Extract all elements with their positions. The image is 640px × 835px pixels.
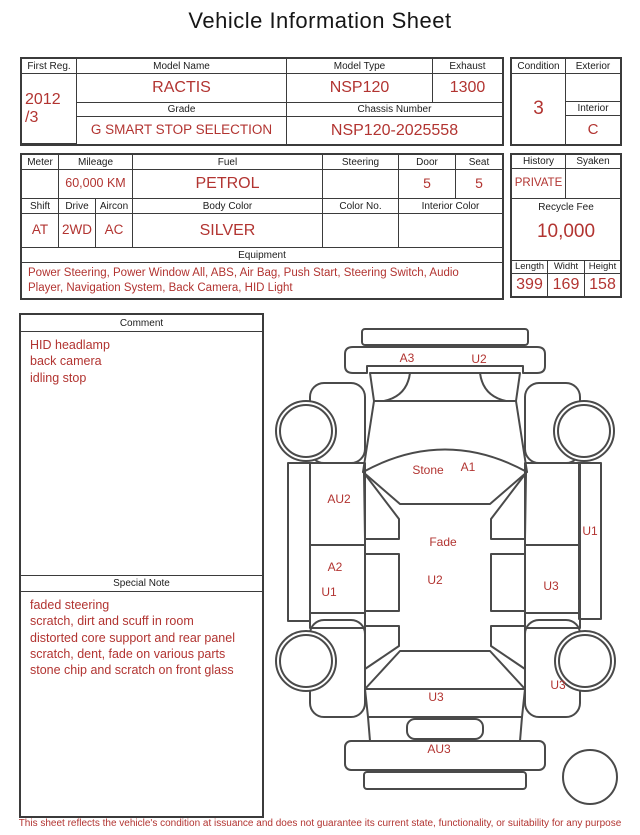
drive-header: Drive [59,199,96,214]
mark-a1: A1 [461,460,476,474]
model-type-header: Model Type [287,59,433,74]
condition-value: 3 [512,74,566,144]
rear-window [365,651,525,689]
first-reg-header: First Reg. [22,59,77,74]
windshield [363,450,527,505]
mark-u2-roof: U2 [427,573,443,587]
body-color-header: Body Color [133,199,323,214]
mark-u1-right: U1 [582,524,598,538]
chassis-number-header: Chassis Number [287,103,502,117]
door-header: Door [399,155,456,170]
width-value: 169 [548,274,585,296]
disclaimer: This sheet reflects the vehicle's condit… [0,818,640,829]
seat-value: 5 [456,170,502,199]
seat-header: Seat [456,155,502,170]
left-headlight [384,373,410,401]
exhaust-value: 1300 [433,74,502,103]
steering-header: Steering [323,155,399,170]
vehicle-identity-table: First Reg. 2012 /3 Model Name Model Type… [20,57,504,146]
height-header: Height [585,261,620,274]
condition-header: Condition [512,59,566,74]
shift-value: AT [22,214,59,248]
hood [370,373,520,401]
length-header: Length [512,261,548,274]
exhaust-header: Exhaust [433,59,502,74]
syaken-value [566,169,620,199]
mark-au2: AU2 [327,492,351,506]
spare-wheel [563,750,617,804]
model-name-value: RACTIS [77,74,287,103]
comment-header: Comment [21,315,262,332]
mark-u1-left: U1 [321,585,337,599]
recycle-fee-header: Recycle Fee [538,202,594,213]
right-headlight [480,373,506,401]
drive-value: 2WD [59,214,96,248]
mark-u3-rear-window: U3 [428,690,444,704]
color-no-header: Color No. [323,199,399,214]
equipment-value: Power Steering, Power Window All, ABS, A… [22,263,502,298]
front-right-wheel [554,401,614,461]
grade-header: Grade [77,103,287,117]
special-note-text: faded steering scratch, dirt and scuff i… [21,592,262,816]
tailgate [368,717,522,741]
fuel-header: Fuel [133,155,323,170]
recycle-fee-cell: Recycle Fee 10,000 [512,199,620,261]
hatch [365,689,525,717]
history-value: PRIVATE [512,169,566,199]
mark-u2-front: U2 [471,352,487,366]
aircon-value: AC [96,214,133,248]
mark-u3-right-door: U3 [543,579,559,593]
damage-marks: A3 U2 Stone A1 AU2 Fade A2 U2 U1 U1 U3 U… [321,351,598,756]
interior-color-value [399,214,502,248]
meter-header: Meter [22,155,59,170]
condition-table: Condition 3 Exterior Interior C [510,57,622,146]
right-sill [579,463,601,619]
first-reg-value: 2012 /3 [22,74,77,144]
syaken-header: Syaken [566,155,620,169]
front-garnish [362,329,528,345]
mark-a2: A2 [328,560,343,574]
left-sill [288,463,310,621]
equipment-header: Equipment [22,248,502,263]
shift-header: Shift [22,199,59,214]
history-fee-dims-table: History Syaken PRIVATE Recycle Fee 10,00… [510,153,622,298]
plate-recess [407,719,483,739]
front-left-wheel [276,401,336,461]
aircon-header: Aircon [96,199,133,214]
length-value: 399 [512,274,548,296]
interior-color-header: Interior Color [399,199,502,214]
door-value: 5 [399,170,456,199]
history-header: History [512,155,566,169]
page-title: Vehicle Information Sheet [0,8,640,34]
comment-text: HID headlamp back camera idling stop [21,332,262,575]
vehicle-spec-table: Meter Mileage Fuel Steering Door Seat 60… [20,153,504,300]
front-bumper [345,347,545,373]
color-no-value [323,214,399,248]
notes-panel: Comment HID headlamp back camera idling … [19,313,264,818]
meter-value [22,170,59,199]
steering-value [323,170,399,199]
mark-u3-rear-fender: U3 [550,678,566,692]
mark-stone: Stone [412,463,444,477]
mark-a3: A3 [400,351,415,365]
chassis-number-value: NSP120-2025558 [287,117,502,144]
exterior-header: Exterior [566,59,620,74]
body-color-value: SILVER [133,214,323,248]
mileage-value: 60,000 KM [59,170,133,199]
width-header: Widht [548,261,585,274]
recycle-fee-value: 10,000 [537,221,595,243]
grade-value: G SMART STOP SELECTION [77,117,287,144]
interior-value: C [566,116,620,144]
rear-left-wheel [276,631,336,691]
exterior-value [566,74,620,102]
model-type-value: NSP120 [287,74,433,103]
mileage-header: Mileage [59,155,133,170]
rear-garnish [364,772,526,789]
interior-header: Interior [566,102,620,116]
mark-fade: Fade [429,535,457,549]
car-diagram: A3 U2 Stone A1 AU2 Fade A2 U2 U1 U1 U3 U… [270,313,640,810]
mark-au3: AU3 [427,742,451,756]
fuel-value: PETROL [133,170,323,199]
height-value: 158 [585,274,620,296]
model-name-header: Model Name [77,59,287,74]
special-note-header: Special Note [21,575,262,592]
